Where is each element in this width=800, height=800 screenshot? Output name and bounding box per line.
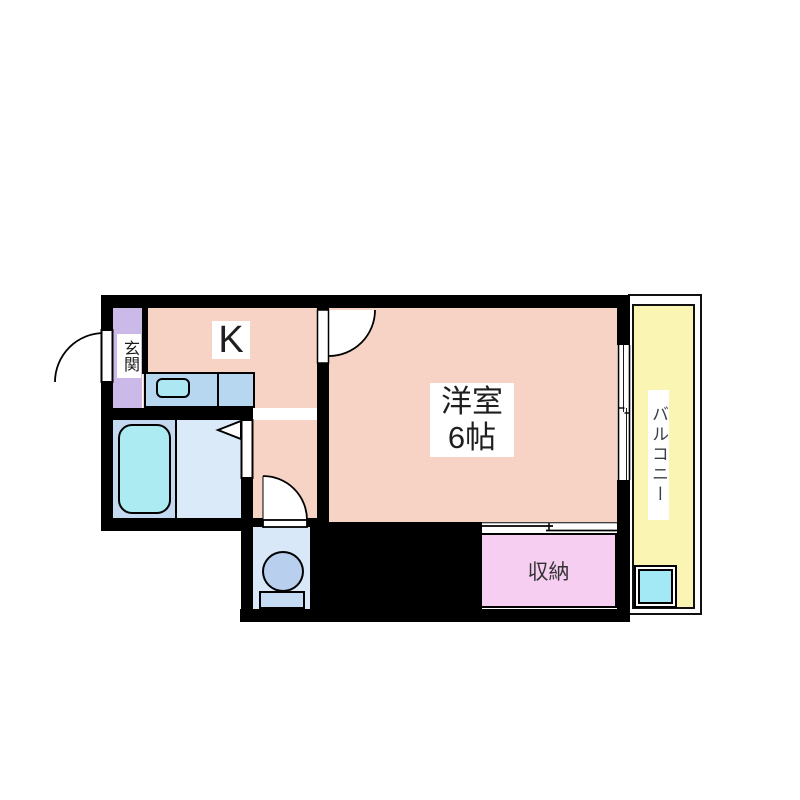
folding-door	[218, 420, 253, 478]
storage-label: 収納	[480, 533, 617, 608]
floor-plan: K 玄関 洋室 6帖 収納 バルコニー	[0, 0, 800, 800]
western-room-label: 洋室 6帖	[430, 383, 514, 457]
western-room-name: 洋室	[441, 384, 503, 420]
interior-door	[318, 310, 376, 363]
closet-sliding-door-lines	[482, 523, 617, 531]
door-window-symbols	[0, 0, 800, 800]
balcony-label: バルコニー	[648, 390, 669, 520]
western-room-size: 6帖	[448, 420, 496, 456]
kitchen-label: K	[212, 321, 250, 359]
toilet-door	[263, 476, 307, 527]
balcony-window-lines	[619, 345, 630, 480]
entrance-label: 玄関	[117, 334, 141, 378]
entrance-door	[55, 330, 113, 382]
